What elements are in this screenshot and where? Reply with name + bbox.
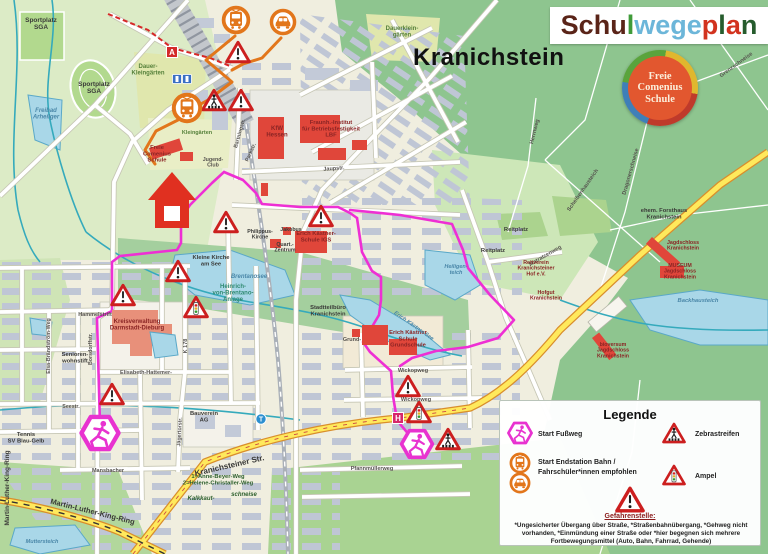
legend-item-zebrastreifen: Zebrastreifen (695, 430, 739, 440)
map-label: Wickopweg (398, 368, 428, 374)
svg-text:H: H (395, 414, 401, 423)
area-title: Kranichstein (413, 44, 564, 72)
map-label: Brentanosee (231, 274, 268, 280)
legend-hexagon-runner-icon (505, 418, 535, 448)
logo-letter: S (561, 12, 579, 39)
badge-line: Freie (648, 71, 671, 82)
map-label: schneise (231, 492, 257, 498)
legend-car-circle-icon (509, 472, 531, 494)
tram-line-badge (183, 75, 192, 84)
legend-zebra-triangle-icon (662, 422, 686, 444)
map-label: Hammelstrift (78, 312, 112, 318)
map-label: Mansbacher (92, 468, 125, 474)
logo-letter: e (687, 12, 702, 39)
map-label: Kleingärten (182, 130, 213, 136)
logo-box: Schulwegeplan (550, 7, 768, 44)
map-label: Muttersteich (26, 539, 59, 545)
logo-letter: l (718, 12, 726, 39)
map-label: ehem. ForsthausKranichstein (641, 208, 687, 220)
logo-text: Schulwegeplan (561, 12, 758, 39)
start-station-circle-car (271, 10, 294, 33)
map-label: Wickopweg (401, 397, 431, 403)
map-label: Backhausteich (678, 298, 719, 304)
map-label: Elsa-Brändström-Weg (46, 318, 52, 374)
map-label: MUSEUMJagdschlossKranichstein (664, 263, 696, 280)
legend-panel: Legende Start Fußweg Start Endstation Ba… (499, 400, 761, 546)
legend-gefahr-triangle-icon (615, 486, 645, 513)
school-badge-label: Freie Comenius Schule (628, 56, 692, 120)
map-label: Reitplatz (481, 248, 505, 254)
map-label: Pfannmüllerweg (351, 466, 393, 472)
start-station-circle-tram (174, 95, 200, 121)
svg-text:A: A (169, 48, 175, 57)
logo-letter: n (741, 12, 758, 39)
legend-item-ampel: Ampel (695, 472, 716, 482)
badge-line: Schule (645, 94, 675, 105)
tram-line-badge (173, 75, 182, 84)
logo-letter: a (726, 12, 741, 39)
stop-letter-box-A: A (167, 47, 178, 58)
schulwegeplan-map-page: AHT SportplatzSGASportplatzSGAFreibadArh… (0, 0, 768, 554)
map-label: 1=Anne-Beyer-Weg2=Helene-Christaller-Weg (183, 474, 254, 486)
map-label: Elisabeth-Hattemer- (120, 370, 172, 376)
logo-letter: u (610, 12, 627, 39)
start-station-circle-tram (224, 8, 249, 33)
stop-letter-box-H: H (393, 413, 404, 424)
logo-letter: e (655, 12, 670, 39)
map-label: bioversumJagdschlossKranichstein (597, 342, 629, 359)
school-badge: Freie Comenius Schule (622, 50, 698, 126)
logo-letter: c (579, 12, 594, 39)
map-label: Reitplatz (504, 227, 528, 233)
legend-item-start-endstation: Start Endstation Bahn / Fahrschüler*inne… (538, 458, 637, 478)
map-label: Erich Kästner-Schule IGS (296, 231, 336, 243)
map-label: StadtteilbüroKranichstein (310, 305, 346, 317)
map-label: Grund- (343, 337, 361, 343)
map-label: FreibadArheilger (32, 108, 60, 120)
map-label: KreisverwaltungDarmstadt-Dieburg (110, 319, 165, 331)
logo-letter: g (670, 12, 687, 39)
legend-tram-circle-icon (509, 452, 531, 474)
logo-letter: w (634, 12, 655, 39)
logo-letter: p (702, 12, 719, 39)
map-label: Martin-Luther-King-Ring (4, 450, 11, 525)
map-label: Senioren-wohnstift (61, 352, 88, 364)
map-label: Seestr. (62, 404, 80, 410)
logo-letter: h (594, 12, 611, 39)
legend-hazard-heading: Gefahrenstelle: (500, 513, 760, 520)
map-label: K 178 (183, 339, 189, 354)
legend-item-start-fussweg: Start Fußweg (538, 430, 582, 440)
legend-ampel-triangle-icon (662, 464, 686, 486)
legend-hazard-text: *Ungesicherter Übergang über Straße, *St… (507, 522, 755, 546)
legend-title: Legende (500, 407, 760, 422)
map-label: Kalkkaut- (187, 496, 214, 502)
svg-text:T: T (259, 417, 264, 424)
badge-line: Comenius (638, 82, 683, 93)
start-fussweg-hexagon (81, 417, 118, 449)
tram-stop-marker: T (256, 414, 266, 424)
map-label: Quart.-Zentrum (274, 242, 295, 254)
map-label: JagdschlossKranichstein (667, 240, 699, 252)
start-fussweg-hexagon (402, 431, 433, 458)
map-label: Borsdorffstr. (88, 332, 94, 365)
